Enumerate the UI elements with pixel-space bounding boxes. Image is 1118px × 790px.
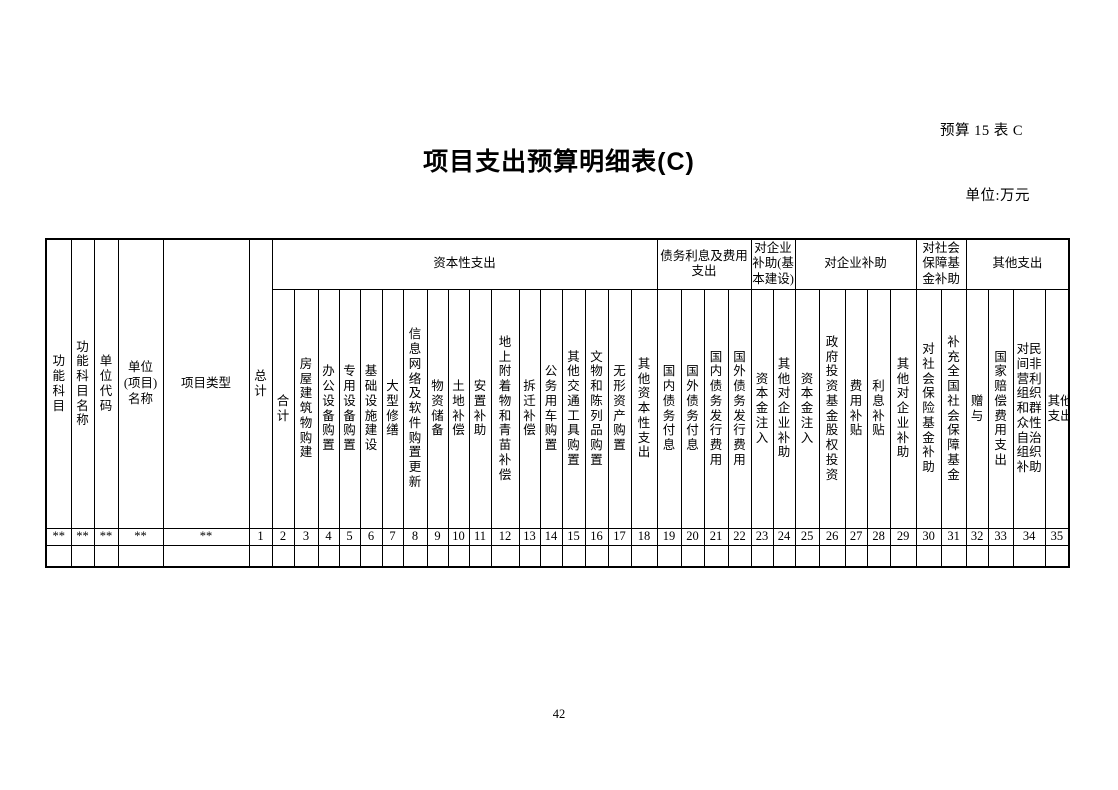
column-header: 国外债务发行费用 (728, 289, 751, 528)
column-number: 11 (469, 528, 491, 545)
header-label: 费用补贴 (849, 379, 864, 438)
empty-cell (318, 545, 339, 567)
column-header: 合计 (272, 289, 294, 528)
empty-cell (1045, 545, 1069, 567)
column-header: 国外债务付息 (681, 289, 704, 528)
column-header: 国内债务付息 (657, 289, 681, 528)
header-label: 功能科目 (52, 354, 67, 413)
empty-cell (890, 545, 916, 567)
column-number: 30 (916, 528, 941, 545)
empty-cell (657, 545, 681, 567)
column-header: 其他对企业补助 (890, 289, 916, 528)
masked-value: ** (94, 528, 118, 545)
column-number: 7 (382, 528, 403, 545)
header-label: 功能科目名称 (75, 340, 90, 429)
header-label: 政府投资基金股权投资 (825, 335, 840, 483)
column-header: 大型修缮 (382, 289, 403, 528)
column-header: 其他资本性支出 (631, 289, 657, 528)
column-number: 6 (360, 528, 382, 545)
header-label: 信息网络及软件购置更新 (408, 327, 423, 489)
empty-cell (631, 545, 657, 567)
column-number: 23 (751, 528, 773, 545)
column-header: 其他对企业补助 (773, 289, 795, 528)
header-label: 安置补助 (473, 379, 488, 438)
empty-cell (382, 545, 403, 567)
header-label: 对民间非营利组织和群众性自治组织补助 (1015, 342, 1044, 475)
column-header: 安置补助 (469, 289, 491, 528)
header-label: 国外债务发行费用 (732, 350, 747, 468)
column-number: 35 (1045, 528, 1069, 545)
data-row (46, 545, 1069, 567)
column-number: 8 (403, 528, 427, 545)
header-label: 利息补贴 (871, 379, 886, 438)
column-number: 14 (540, 528, 562, 545)
column-number-row: ** ** ** ** ** 1 2 3 4 5 6 7 8 9 10 11 1… (46, 528, 1069, 545)
column-number: 5 (339, 528, 360, 545)
empty-cell (608, 545, 631, 567)
header-label: 资本金注入 (755, 372, 770, 446)
header-label: 文物和陈列品购置 (589, 350, 604, 468)
empty-cell (795, 545, 819, 567)
column-number: 27 (845, 528, 867, 545)
column-number: 22 (728, 528, 751, 545)
empty-cell (540, 545, 562, 567)
column-number: 16 (585, 528, 608, 545)
header-label: 无形资产购置 (612, 364, 627, 453)
header-label: 大型修缮 (385, 379, 400, 438)
column-number: 34 (1013, 528, 1045, 545)
header-label: 基础设施建设 (364, 364, 379, 453)
header-label: 专用设备购置 (342, 364, 357, 453)
empty-cell (562, 545, 585, 567)
column-header: 物资储备 (427, 289, 448, 528)
empty-cell (941, 545, 966, 567)
page-title: 项目支出预算明细表(C) (0, 142, 1118, 178)
header-label: 补充全国社会保障基金 (946, 335, 961, 483)
column-header: 基础设施建设 (360, 289, 382, 528)
header-function-subject: 功能科目 (46, 239, 71, 528)
empty-cell (681, 545, 704, 567)
empty-cell (403, 545, 427, 567)
header-function-subject-name: 功能科目名称 (71, 239, 94, 528)
column-number: 28 (867, 528, 890, 545)
header-total: 总计 (249, 239, 272, 528)
header-label: 其他支出 (1046, 394, 1070, 424)
empty-cell (916, 545, 941, 567)
empty-cell (118, 545, 163, 567)
header-label: 公务用车购置 (544, 364, 559, 453)
column-number: 17 (608, 528, 631, 545)
budget-table: 功能科目 功能科目名称 单位代码 单位 (项目) 名称 项目类型 总计 资本性支… (45, 238, 1070, 568)
column-number: 15 (562, 528, 585, 545)
empty-cell (249, 545, 272, 567)
column-number: 18 (631, 528, 657, 545)
column-header: 拆迁补偿 (519, 289, 540, 528)
column-header: 文物和陈列品购置 (585, 289, 608, 528)
empty-cell (704, 545, 728, 567)
empty-cell (360, 545, 382, 567)
column-number: 21 (704, 528, 728, 545)
column-number: 26 (819, 528, 845, 545)
column-header: 对社会保险基金补助 (916, 289, 941, 528)
header-unit-code: 单位代码 (94, 239, 118, 528)
header-label: 土地补偿 (451, 379, 466, 438)
group-enterprise-subsidy: 对企业补助 (795, 239, 916, 289)
header-unit-project-name: 单位 (项目) 名称 (118, 239, 163, 528)
header-label: 其他对企业补助 (777, 357, 792, 460)
group-enterprise-subsidy-capital-construction: 对企业 补助(基 本建设) (751, 239, 795, 289)
header-label: 单位代码 (99, 354, 114, 413)
masked-value: ** (118, 528, 163, 545)
empty-cell (1013, 545, 1045, 567)
header-label: 资本金注入 (800, 372, 815, 446)
column-header: 房屋建筑物购建 (294, 289, 318, 528)
form-code-label: 预算 15 表 C (940, 119, 1023, 140)
masked-value: ** (46, 528, 71, 545)
header-label: 合计 (276, 394, 291, 424)
group-capital-expenditure: 资本性支出 (272, 239, 657, 289)
column-number: 12 (491, 528, 519, 545)
column-header: 公务用车购置 (540, 289, 562, 528)
empty-cell (585, 545, 608, 567)
header-label: 房屋建筑物购建 (299, 357, 314, 460)
column-number: 31 (941, 528, 966, 545)
column-header: 地上附着物和青苗补偿 (491, 289, 519, 528)
header-group-row: 功能科目 功能科目名称 单位代码 单位 (项目) 名称 项目类型 总计 资本性支… (46, 239, 1069, 289)
empty-cell (339, 545, 360, 567)
header-label: 国内债务付息 (662, 364, 677, 453)
column-number: 2 (272, 528, 294, 545)
unit-label: 单位:万元 (965, 184, 1030, 205)
column-header: 信息网络及软件购置更新 (403, 289, 427, 528)
column-header: 国家赔偿费用支出 (988, 289, 1013, 528)
column-number: 3 (294, 528, 318, 545)
header-label: 其他交通工具购置 (566, 350, 581, 468)
column-number: 19 (657, 528, 681, 545)
column-number: 20 (681, 528, 704, 545)
column-number: 10 (448, 528, 469, 545)
column-header: 赠与 (966, 289, 988, 528)
column-header: 资本金注入 (751, 289, 773, 528)
column-header: 资本金注入 (795, 289, 819, 528)
header-label: 国内债务发行费用 (709, 350, 724, 468)
column-number: 1 (249, 528, 272, 545)
column-header: 利息补贴 (867, 289, 890, 528)
column-header: 补充全国社会保障基金 (941, 289, 966, 528)
column-number: 29 (890, 528, 916, 545)
group-debt-interest-fees: 债务利息及费用 支出 (657, 239, 751, 289)
group-other-expenditure: 其他支出 (966, 239, 1069, 289)
empty-cell (867, 545, 890, 567)
header-label: 国外债务付息 (685, 364, 700, 453)
column-number: 13 (519, 528, 540, 545)
page: 预算 15 表 C 项目支出预算明细表(C) 单位:万元 功能科目 功能科目名称… (0, 0, 1118, 790)
header-label: 办公设备购置 (321, 364, 336, 453)
group-social-security-fund-subsidy: 对社会 保障基 金补助 (916, 239, 966, 289)
column-header: 其他交通工具购置 (562, 289, 585, 528)
empty-cell (728, 545, 751, 567)
empty-cell (519, 545, 540, 567)
column-number: 9 (427, 528, 448, 545)
empty-cell (988, 545, 1013, 567)
column-header: 专用设备购置 (339, 289, 360, 528)
column-header: 无形资产购置 (608, 289, 631, 528)
header-label: 其他对企业补助 (896, 357, 911, 460)
header-label: 对社会保险基金补助 (921, 342, 936, 475)
header-label: 赠与 (970, 394, 985, 424)
empty-cell (427, 545, 448, 567)
empty-cell (491, 545, 519, 567)
empty-cell (294, 545, 318, 567)
empty-cell (94, 545, 118, 567)
header-project-type: 项目类型 (163, 239, 249, 528)
column-header: 政府投资基金股权投资 (819, 289, 845, 528)
masked-value: ** (163, 528, 249, 545)
empty-cell (773, 545, 795, 567)
column-header: 其他支出 (1045, 289, 1069, 528)
empty-cell (966, 545, 988, 567)
column-header: 土地补偿 (448, 289, 469, 528)
empty-cell (751, 545, 773, 567)
column-number: 25 (795, 528, 819, 545)
page-number: 42 (0, 707, 1118, 722)
column-header: 办公设备购置 (318, 289, 339, 528)
empty-cell (469, 545, 491, 567)
header-label: 拆迁补偿 (522, 379, 537, 438)
header-label: 地上附着物和青苗补偿 (498, 335, 513, 483)
column-header: 费用补贴 (845, 289, 867, 528)
empty-cell (163, 545, 249, 567)
column-header: 国内债务发行费用 (704, 289, 728, 528)
empty-cell (46, 545, 71, 567)
header-label: 物资储备 (430, 379, 445, 438)
empty-cell (819, 545, 845, 567)
header-label: 国家赔偿费用支出 (993, 350, 1008, 468)
column-header: 对民间非营利组织和群众性自治组织补助 (1013, 289, 1045, 528)
masked-value: ** (71, 528, 94, 545)
empty-cell (71, 545, 94, 567)
empty-cell (845, 545, 867, 567)
header-label: 其他资本性支出 (637, 357, 652, 460)
column-number: 33 (988, 528, 1013, 545)
empty-cell (272, 545, 294, 567)
column-number: 24 (773, 528, 795, 545)
column-number: 32 (966, 528, 988, 545)
column-number: 4 (318, 528, 339, 545)
empty-cell (448, 545, 469, 567)
header-label: 总计 (253, 369, 268, 399)
